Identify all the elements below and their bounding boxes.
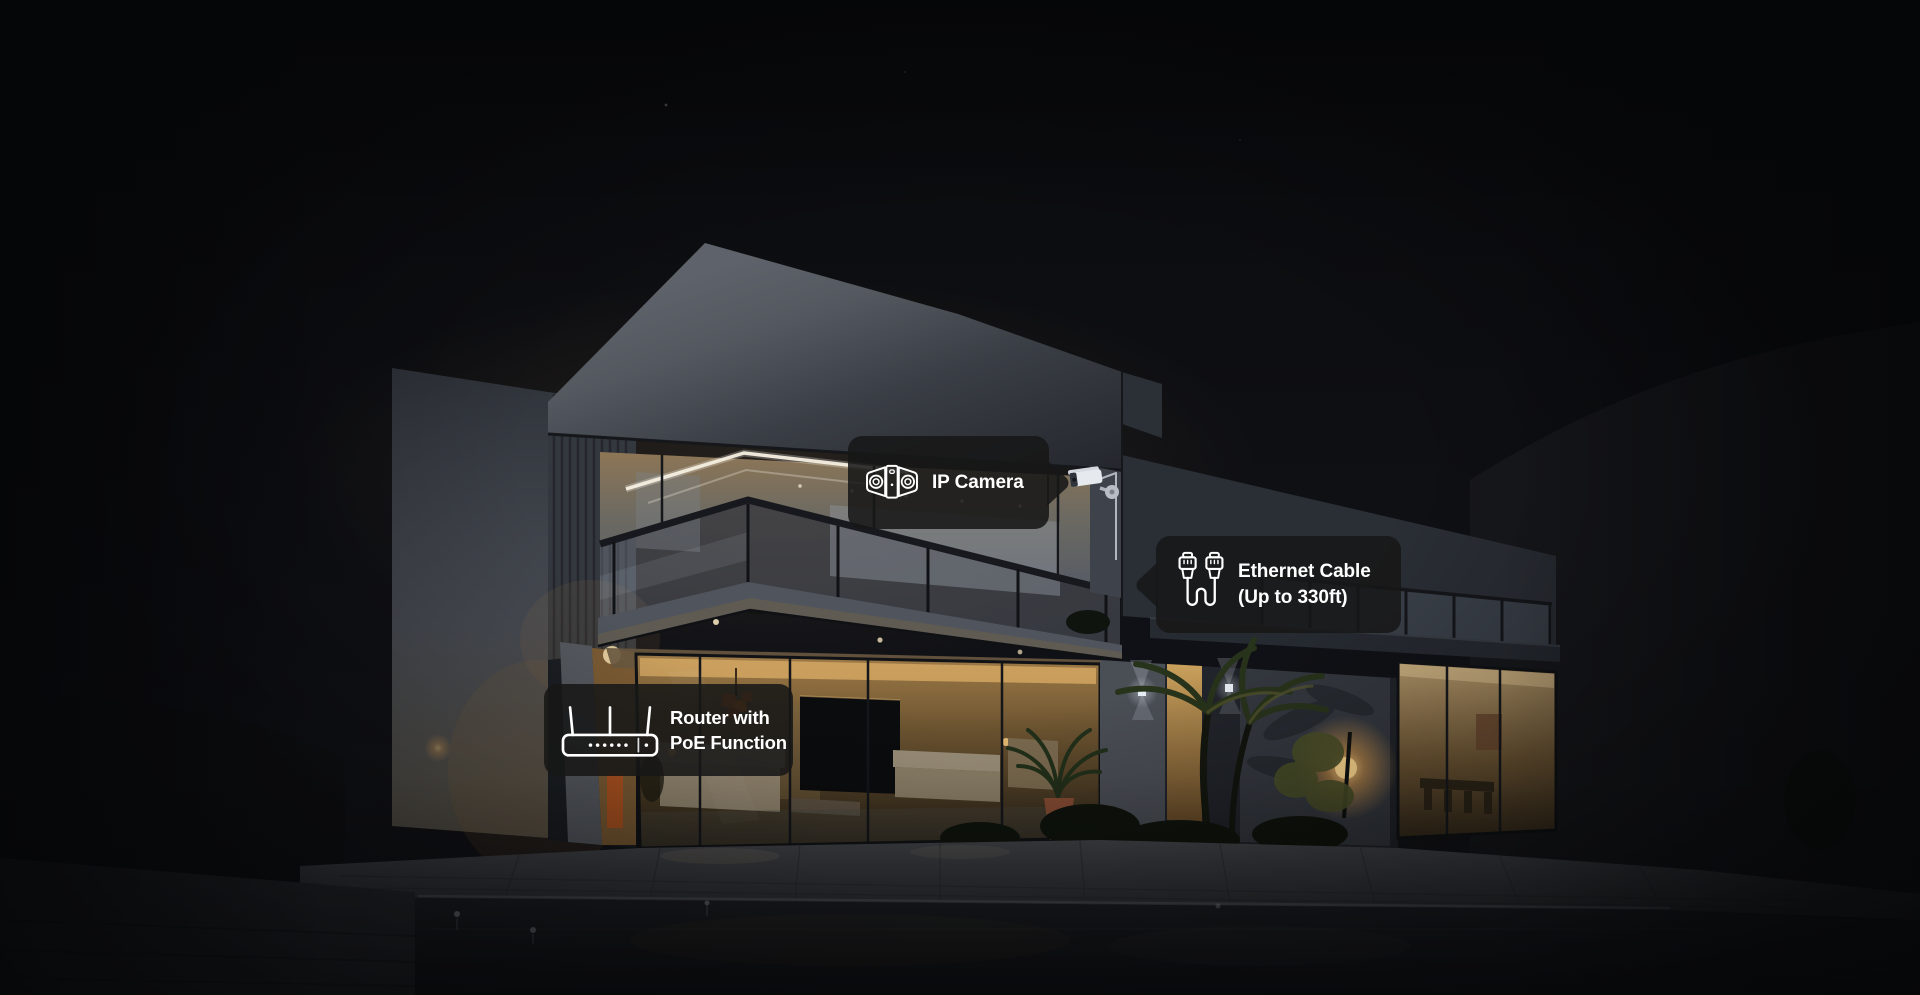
callout-pointer-right (1046, 460, 1070, 506)
poe-camera-setup-hero: IP Camera Ethernet Cable (Up to 330ft) (0, 0, 1920, 995)
ip-camera-icon (864, 462, 920, 503)
callout-ethernet-cable: Ethernet Cable (Up to 330ft) (1156, 536, 1401, 633)
wall-art (1476, 714, 1502, 750)
dining-room-glass (1398, 662, 1556, 838)
far-right-palm (1784, 750, 1856, 850)
ethernet-cable-icon (1176, 551, 1226, 619)
light-spill (910, 845, 1010, 859)
star (1239, 139, 1241, 141)
star (665, 104, 668, 107)
callout-router-poe: Router with PoE Function (544, 684, 793, 776)
star (904, 71, 906, 73)
callout-label: Router with PoE Function (670, 705, 787, 755)
callout-label: Ethernet Cable (Up to 330ft) (1238, 559, 1371, 611)
light-spill (660, 848, 780, 864)
balcony-plant (1066, 610, 1110, 634)
wall-light (424, 734, 452, 762)
water-reflection (1110, 926, 1410, 966)
tv (800, 696, 900, 794)
router-icon (560, 703, 660, 758)
orange-cabinet (607, 772, 623, 828)
callout-ip-camera: IP Camera (848, 436, 1049, 529)
camera-wall-pier (1090, 466, 1122, 598)
water-reflection (630, 914, 1070, 966)
callout-pointer-left (1135, 562, 1159, 608)
callout-label: IP Camera (932, 472, 1024, 494)
pool (415, 898, 1920, 995)
